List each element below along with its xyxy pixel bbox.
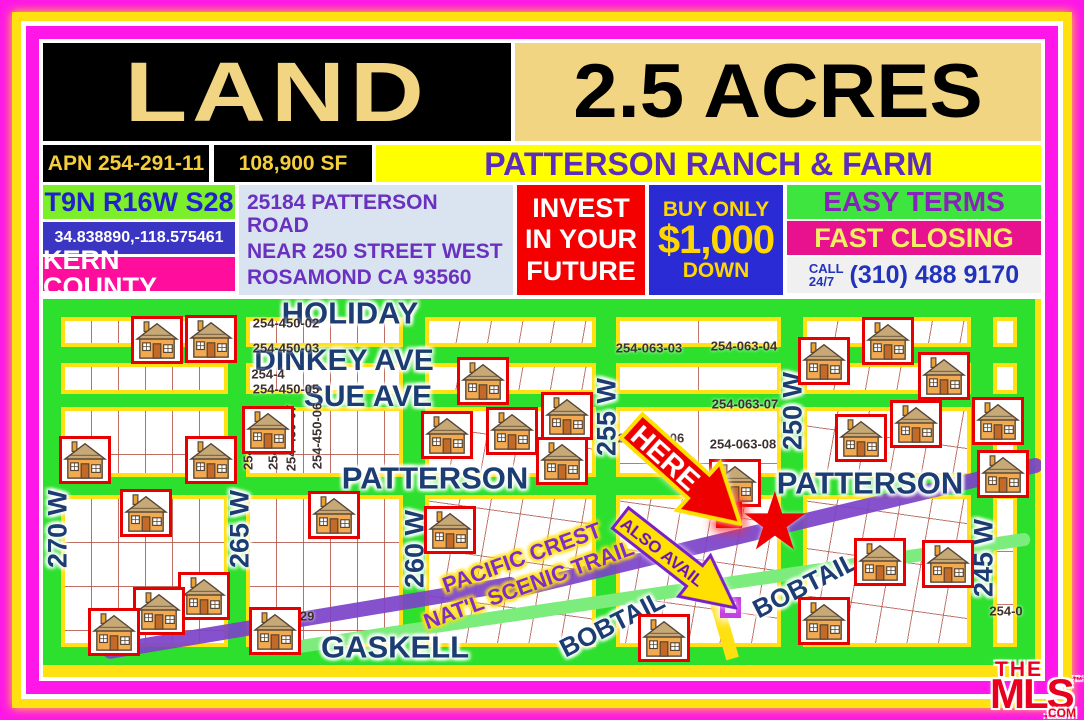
house-clipart: [489, 410, 535, 452]
parcel-label: 254-063-04: [711, 340, 778, 353]
house-icon: [424, 506, 476, 554]
house-icon: [421, 411, 473, 459]
house-clipart: [641, 617, 687, 659]
mls-logo-tm: ™: [1073, 676, 1083, 687]
buy-line2: DOWN: [683, 260, 750, 281]
parcel-label: 254-0: [989, 605, 1022, 618]
land-title: LAND: [125, 50, 429, 134]
street-label: 245 W: [971, 519, 998, 597]
house-clipart: [893, 403, 939, 445]
ranch-title: PATTERSON RANCH & FARM: [376, 145, 1041, 182]
frame-inner-magenta: LAND 2.5 ACRES APN 254-291-11 108,900 SF…: [26, 26, 1058, 694]
address-box: 25184 PATTERSON ROAD NEAR 250 STREET WES…: [239, 185, 513, 295]
parcel-label: 254-450-06: [311, 403, 324, 470]
house-clipart: [801, 600, 847, 642]
house-clipart: [181, 575, 227, 617]
acres-banner: 2.5 ACRES: [515, 43, 1041, 141]
buy-only-box: BUY ONLY $1,000 DOWN: [649, 185, 783, 295]
address-line2: NEAR 250 STREET WEST: [247, 240, 503, 263]
street-label: 270 W: [45, 490, 72, 568]
house-icon: [131, 316, 183, 364]
header-banner: LAND 2.5 ACRES: [43, 43, 1041, 141]
house-clipart: [188, 318, 234, 360]
house-icon: [185, 436, 237, 484]
invest-line3: FUTURE: [526, 256, 636, 287]
house-clipart: [980, 453, 1026, 495]
house-icon: [59, 436, 111, 484]
house-icon: [798, 337, 850, 385]
down-amount: $1,000: [658, 220, 774, 260]
house-icon: [977, 450, 1029, 498]
house-clipart: [252, 610, 298, 652]
parcel-label: 254-450-03: [253, 342, 320, 355]
house-clipart: [245, 409, 291, 451]
house-clipart: [311, 494, 357, 536]
township-box: T9N R16W S28: [43, 185, 235, 219]
house-icon: [242, 406, 294, 454]
legal-column: T9N R16W S28 34.838890,-118.575461 KERN …: [43, 185, 235, 295]
house-clipart: [865, 320, 911, 362]
map-block: [997, 499, 1013, 643]
road-horizontal: [43, 394, 1035, 407]
address-line1: 25184 PATTERSON ROAD: [247, 191, 505, 237]
parcel-label: 254-4: [251, 368, 284, 381]
house-icon: [972, 397, 1024, 445]
house-icon: [308, 491, 360, 539]
parcel-label: 254-450-02: [253, 317, 320, 330]
buy-line1: BUY ONLY: [663, 199, 769, 220]
house-icon: [133, 587, 185, 635]
call-hours: 24/7: [809, 275, 844, 288]
fast-closing-box: FAST CLOSING: [787, 221, 1041, 255]
house-clipart: [91, 611, 137, 653]
map-block: [65, 367, 224, 390]
house-icon: [486, 407, 538, 455]
house-icon: [862, 317, 914, 365]
road-horizontal: [43, 647, 1035, 665]
house-clipart: [921, 355, 967, 397]
house-icon: [918, 352, 970, 400]
parcel-map: PACIFIC CREST NAT'L SCENIC TRAIL HERE AL…: [43, 299, 1041, 677]
house-clipart: [838, 417, 884, 459]
house-clipart: [857, 541, 903, 583]
parcel-label: 254-450-05: [253, 383, 320, 396]
county-box: KERN COUNTY: [43, 257, 235, 291]
house-clipart: [123, 492, 169, 534]
house-icon: [835, 414, 887, 462]
apn-bar: APN 254-291-11 108,900 SF PATTERSON RANC…: [43, 145, 1041, 182]
house-clipart: [925, 543, 971, 585]
house-icon: [88, 608, 140, 656]
house-icon: [638, 614, 690, 662]
terms-column: EASY TERMS FAST CLOSING CALL 24/7 (310) …: [787, 185, 1041, 295]
flyer-content: LAND 2.5 ACRES APN 254-291-11 108,900 SF…: [39, 39, 1045, 681]
parcel-label: 254-063-03: [616, 342, 683, 355]
house-icon: [890, 400, 942, 448]
acres-title: 2.5 ACRES: [573, 54, 982, 130]
house-icon: [536, 437, 588, 485]
call-24-7: CALL 24/7: [809, 262, 844, 288]
house-clipart: [975, 400, 1021, 442]
house-icon: [249, 607, 301, 655]
street-label: 265 W: [227, 490, 254, 568]
mls-logo: THE MLS™ .COM: [990, 662, 1076, 718]
house-icon: [457, 357, 509, 405]
house-clipart: [539, 440, 585, 482]
sqft-box: 108,900 SF: [214, 145, 372, 182]
house-clipart: [427, 509, 473, 551]
parcel-label: 254-063-08: [710, 438, 777, 451]
flyer-frame: LAND 2.5 ACRES APN 254-291-11 108,900 SF…: [0, 0, 1084, 720]
house-clipart: [544, 395, 590, 437]
map-block: [997, 367, 1013, 390]
apn-box: APN 254-291-11: [43, 145, 209, 182]
map-block: [620, 367, 777, 390]
map-block: [429, 367, 592, 390]
street-label: GASKELL: [321, 632, 469, 663]
house-icon: [854, 538, 906, 586]
house-icon: [185, 315, 237, 363]
street-label: PATTERSON: [342, 463, 529, 494]
house-clipart: [460, 360, 506, 402]
house-clipart: [188, 439, 234, 481]
land-banner: LAND: [43, 43, 511, 141]
invest-line2: IN YOUR: [525, 224, 637, 255]
invest-line1: INVEST: [532, 193, 630, 224]
info-row: T9N R16W S28 34.838890,-118.575461 KERN …: [43, 185, 1041, 295]
house-clipart: [62, 439, 108, 481]
frame-white-stripe: LAND 2.5 ACRES APN 254-291-11 108,900 SF…: [21, 21, 1063, 699]
map-block: [807, 411, 967, 473]
easy-terms-box: EASY TERMS: [787, 185, 1041, 219]
house-clipart: [424, 414, 470, 456]
invest-box: INVEST IN YOUR FUTURE: [517, 185, 645, 295]
house-clipart: [134, 319, 180, 361]
house-clipart: [136, 590, 182, 632]
house-icon: [922, 540, 974, 588]
house-icon: [120, 489, 172, 537]
house-icon: [178, 572, 230, 620]
map-block: [997, 321, 1013, 343]
house-clipart: [801, 340, 847, 382]
house-icon: [541, 392, 593, 440]
phone-number: (310) 488 9170: [850, 261, 1020, 290]
map-block: [429, 321, 592, 343]
frame-yellow-stripe: LAND 2.5 ACRES APN 254-291-11 108,900 SF…: [12, 12, 1072, 708]
parcel-label: 254-063-07: [712, 398, 779, 411]
call-box: CALL 24/7 (310) 488 9170: [787, 257, 1041, 293]
house-icon: [798, 597, 850, 645]
address-line3: ROSAMOND CA 93560: [247, 266, 471, 289]
